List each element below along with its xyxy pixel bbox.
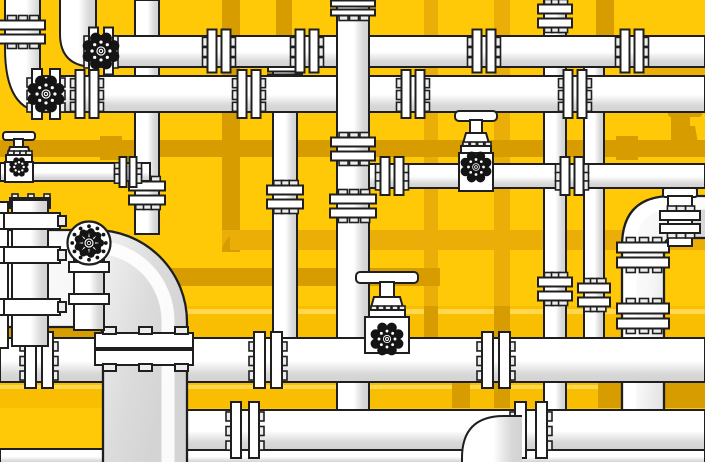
gate-valve-5-stem	[380, 282, 394, 298]
bg-valve-body	[672, 126, 698, 143]
bg-valve-stem	[680, 116, 690, 126]
big-flange-joint-plate-top	[95, 333, 193, 348]
bg-patch-b	[424, 306, 438, 338]
column-b-ring-2-tab	[58, 250, 66, 260]
disc-bracket-bar-2	[69, 294, 109, 304]
bg-coupling-b	[616, 136, 638, 160]
column-b-ring-1-tab	[58, 216, 66, 226]
pipes-illustration-svg	[0, 0, 705, 462]
bg-patch-d	[452, 382, 470, 408]
gate-valve-4-stem	[470, 120, 482, 134]
big-flange-disc-handwheel-icon	[68, 222, 111, 265]
column-b-ring-3	[4, 299, 60, 315]
column-b-ring-3-tab	[58, 302, 66, 312]
big-joint-bolt-c	[175, 327, 188, 334]
pipe-h1	[40, 76, 705, 112]
pipe-h2	[96, 36, 705, 67]
big-joint-bolt-f	[175, 364, 188, 371]
big-joint-bolt-d	[103, 364, 116, 371]
pipes-illustration	[0, 0, 705, 462]
big-joint-bolt-b	[139, 327, 152, 334]
big-flange-joint-plate-bottom	[95, 350, 193, 365]
column-b-ring-2	[4, 247, 60, 263]
big-joint-bolt-e	[139, 364, 152, 371]
column-b-ring-1	[4, 213, 60, 229]
